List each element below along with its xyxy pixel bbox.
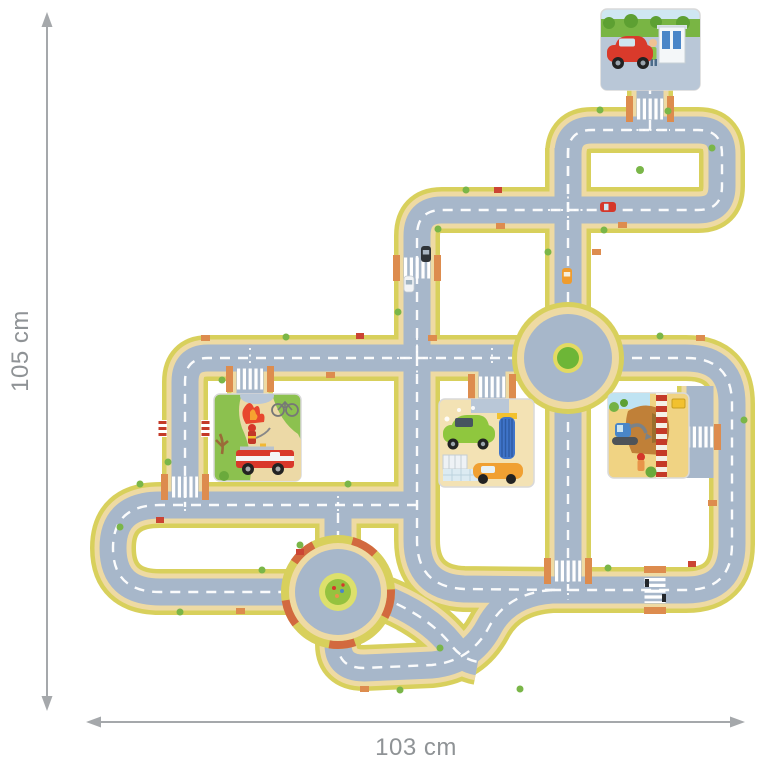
traffic-light-icon [645,579,649,587]
upper-roundabout [512,302,624,414]
gas-station-tile [601,9,700,90]
car-wash-tile [439,399,534,487]
red-car [600,202,616,212]
warning-sign [672,399,685,408]
white-car [404,276,414,292]
orange-car [562,268,572,284]
person-head [649,39,657,47]
ladder [240,447,274,451]
roundabout-green-island [557,347,579,369]
arrow-down-icon [42,696,53,711]
excavator-tracks [612,437,638,445]
roundabout-flower-island [325,579,351,605]
black-car [421,246,431,262]
arrow-up-icon [42,12,53,27]
fire-rescue-tile [214,388,301,481]
firefighter-helmet [248,424,256,432]
width-dimension-label: 103 cm [375,734,457,761]
vertical-dimension: 105 cm [7,12,53,711]
playmat-diagram: 105 cm 103 cm [0,0,768,768]
height-dimension-label: 105 cm [7,310,34,392]
entry-road [471,399,509,413]
product-image: 105 cm 103 cm [0,0,768,768]
traffic-light-icon [662,594,666,602]
worker-body [638,460,645,471]
horizontal-dimension: 103 cm [86,717,745,762]
arrow-right-icon [730,717,745,728]
red-car-window [619,39,635,47]
arrow-left-icon [86,717,101,728]
worker-helmet [637,453,645,461]
construction-site-tile [608,393,689,478]
